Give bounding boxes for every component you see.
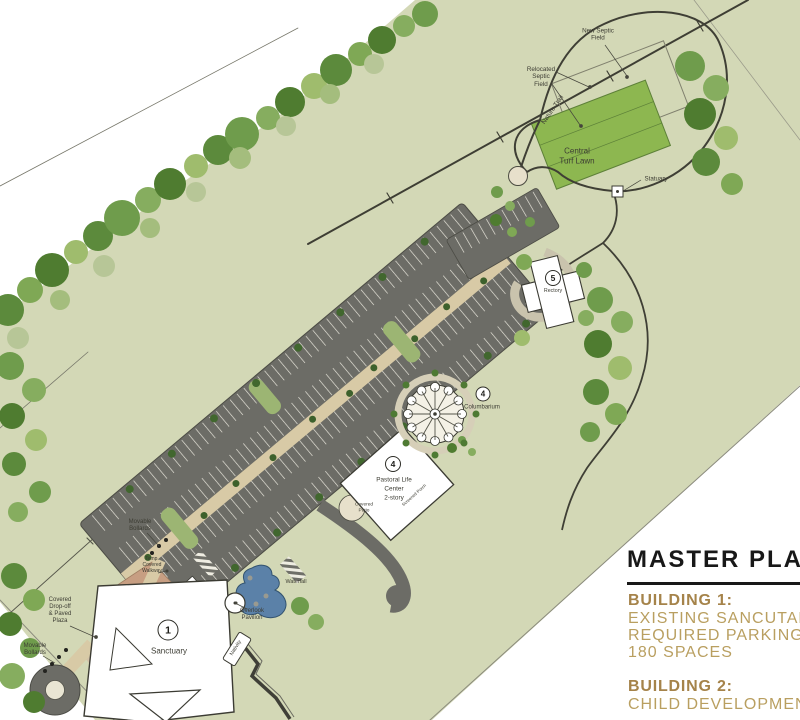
building2-heading: BUILDING 2: — [628, 678, 733, 696]
label-covered-dropoff-plaza: CoveredDrop-off & PavedPlaza — [49, 597, 72, 625]
label-columbarium: Columbarium — [464, 404, 500, 411]
label-new-septic-field: New SepticField — [582, 28, 614, 43]
master-plan-sheet: New SepticField RelocatedSepticField Nat… — [0, 0, 800, 720]
label-statuary: Statuary — [644, 175, 667, 182]
label-overlook-pavilion: OverlookPavilion — [240, 608, 264, 622]
lawn-plaza — [509, 167, 528, 186]
statuary-marker — [612, 186, 623, 197]
building2-line: CHILD DEVELOPMENT — [628, 696, 800, 714]
building1-line: 180 SPACES — [628, 644, 733, 662]
building1-heading: BUILDING 1: — [628, 592, 733, 610]
sanctuary-number-badge: 1 — [158, 620, 179, 641]
label-movable-bollards-lower: MovableBollards — [24, 643, 47, 657]
page-title: MASTER PLAN — [627, 546, 800, 585]
building1-line: REQUIRED PARKING — [628, 627, 800, 645]
label-sanctuary: Sanctuary — [151, 646, 187, 655]
label-waterfall: Waterfall — [285, 579, 306, 585]
columbarium-number-badge: 4 — [476, 387, 491, 402]
label-relocated-septic-field: RelocatedSepticField — [527, 66, 555, 88]
label-rectory: Rectory — [544, 288, 562, 294]
label-covered-patio: CoveredPatio — [355, 502, 373, 513]
rectory-number-badge: 5 — [545, 270, 561, 286]
building1-line: EXISTING SANCUTARY — [628, 610, 800, 628]
label-movable-bollards-upper: MovableBollards — [129, 519, 152, 533]
pastoral-life-center-number-badge: 4 — [385, 456, 401, 472]
label-temp-covered-walkway: Temp.CoveredWalkway — [142, 557, 162, 575]
drive-turnaround — [386, 585, 408, 607]
label-central-turf-lawn: CentralTurf Lawn — [559, 147, 594, 168]
